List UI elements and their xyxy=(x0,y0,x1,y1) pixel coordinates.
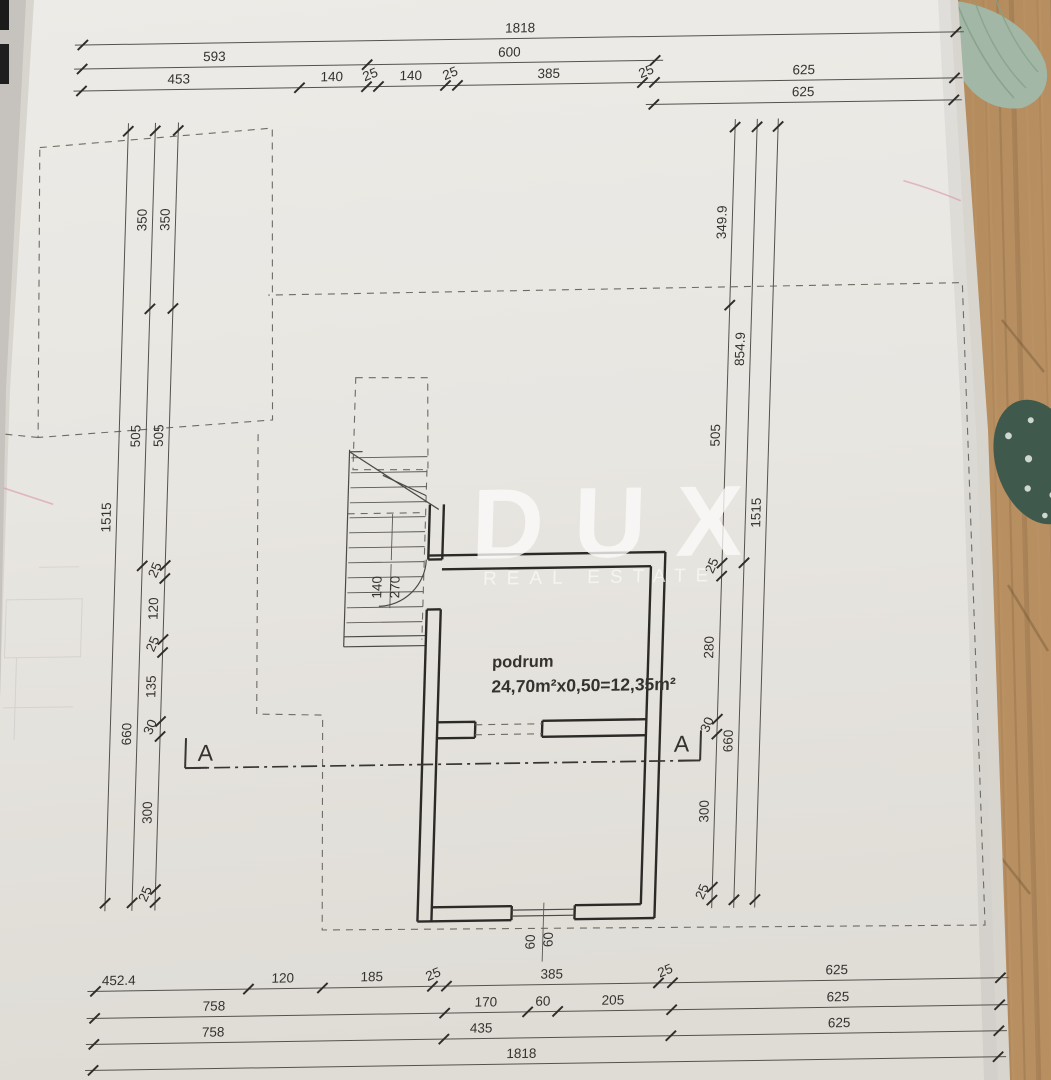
dim-label-top: 385 xyxy=(537,66,560,81)
dim-label-left: 120 xyxy=(146,597,162,620)
floorplan-photo: A A 181859360045314025140253852562562545… xyxy=(0,0,1051,1080)
dim-label-bottom: 385 xyxy=(540,966,563,981)
dim-label-stair: 140 xyxy=(369,576,385,599)
dark-object-top-left xyxy=(0,0,9,30)
dim-label-left: 505 xyxy=(128,425,144,448)
watermark-title: DUX xyxy=(470,464,774,580)
dim-label-bottom: 625 xyxy=(825,962,848,977)
dim-label-bottom: 205 xyxy=(601,992,624,1007)
dim-label-right: 349.9 xyxy=(714,205,730,239)
section-marker-left: A xyxy=(198,740,215,766)
dim-label-left: 660 xyxy=(119,723,135,746)
section-marker-right: A xyxy=(674,731,691,757)
room-name: podrum xyxy=(492,653,554,672)
dim-label-bottom: 625 xyxy=(828,1015,851,1030)
dim-label-top: 140 xyxy=(399,68,422,83)
dim-label-bottom: 60 xyxy=(535,994,550,1009)
watermark-subtitle: REAL ESTATE xyxy=(483,565,719,590)
dim-label-right: 280 xyxy=(701,636,717,659)
dim-label-bottom: 452.4 xyxy=(102,973,137,989)
photo-scene: A A 181859360045314025140253852562562545… xyxy=(0,0,1051,1080)
dim-label-bottom: 120 xyxy=(271,970,294,985)
dim-label-right: 660 xyxy=(720,730,736,753)
dim-label-top: 593 xyxy=(203,49,226,64)
dim-label-top: 140 xyxy=(320,69,343,84)
dim-label-stair: 270 xyxy=(387,576,403,599)
dim-label-bottom: 1818 xyxy=(506,1046,536,1061)
watermark: DUX REAL ESTATE xyxy=(470,464,775,589)
dim-label-bottom: 758 xyxy=(202,1024,225,1039)
dim-label-bottom: 758 xyxy=(202,998,225,1013)
dim-label-left: 505 xyxy=(151,424,167,447)
dim-label-left: 350 xyxy=(134,209,150,232)
dim-label-left: 350 xyxy=(157,208,173,231)
dim-label-window: 60 xyxy=(523,934,538,949)
dim-label-right: 854.9 xyxy=(732,332,748,366)
dim-label-top: 600 xyxy=(498,44,521,59)
dim-label-right: 505 xyxy=(708,424,724,447)
dark-object-left xyxy=(0,44,9,84)
dim-label-top: 625 xyxy=(792,62,815,77)
dim-label-bottom: 170 xyxy=(474,994,497,1009)
dim-label-bottom: 435 xyxy=(470,1020,493,1035)
dim-label-bottom: 625 xyxy=(826,989,849,1004)
dim-label-left: 300 xyxy=(139,801,155,824)
room-area-formula: 24,70m²x0,50=12,35m² xyxy=(491,674,676,697)
dim-label-bottom: 185 xyxy=(360,969,383,984)
dim-label-right: 300 xyxy=(696,800,712,823)
dim-label-left: 1515 xyxy=(98,502,114,532)
dim-label-left: 135 xyxy=(143,675,159,698)
dim-label-top: 625 xyxy=(792,84,815,99)
dim-label-top: 453 xyxy=(167,71,190,86)
dim-label-top: 1818 xyxy=(505,20,535,35)
dim-label-window: 60 xyxy=(541,932,556,947)
